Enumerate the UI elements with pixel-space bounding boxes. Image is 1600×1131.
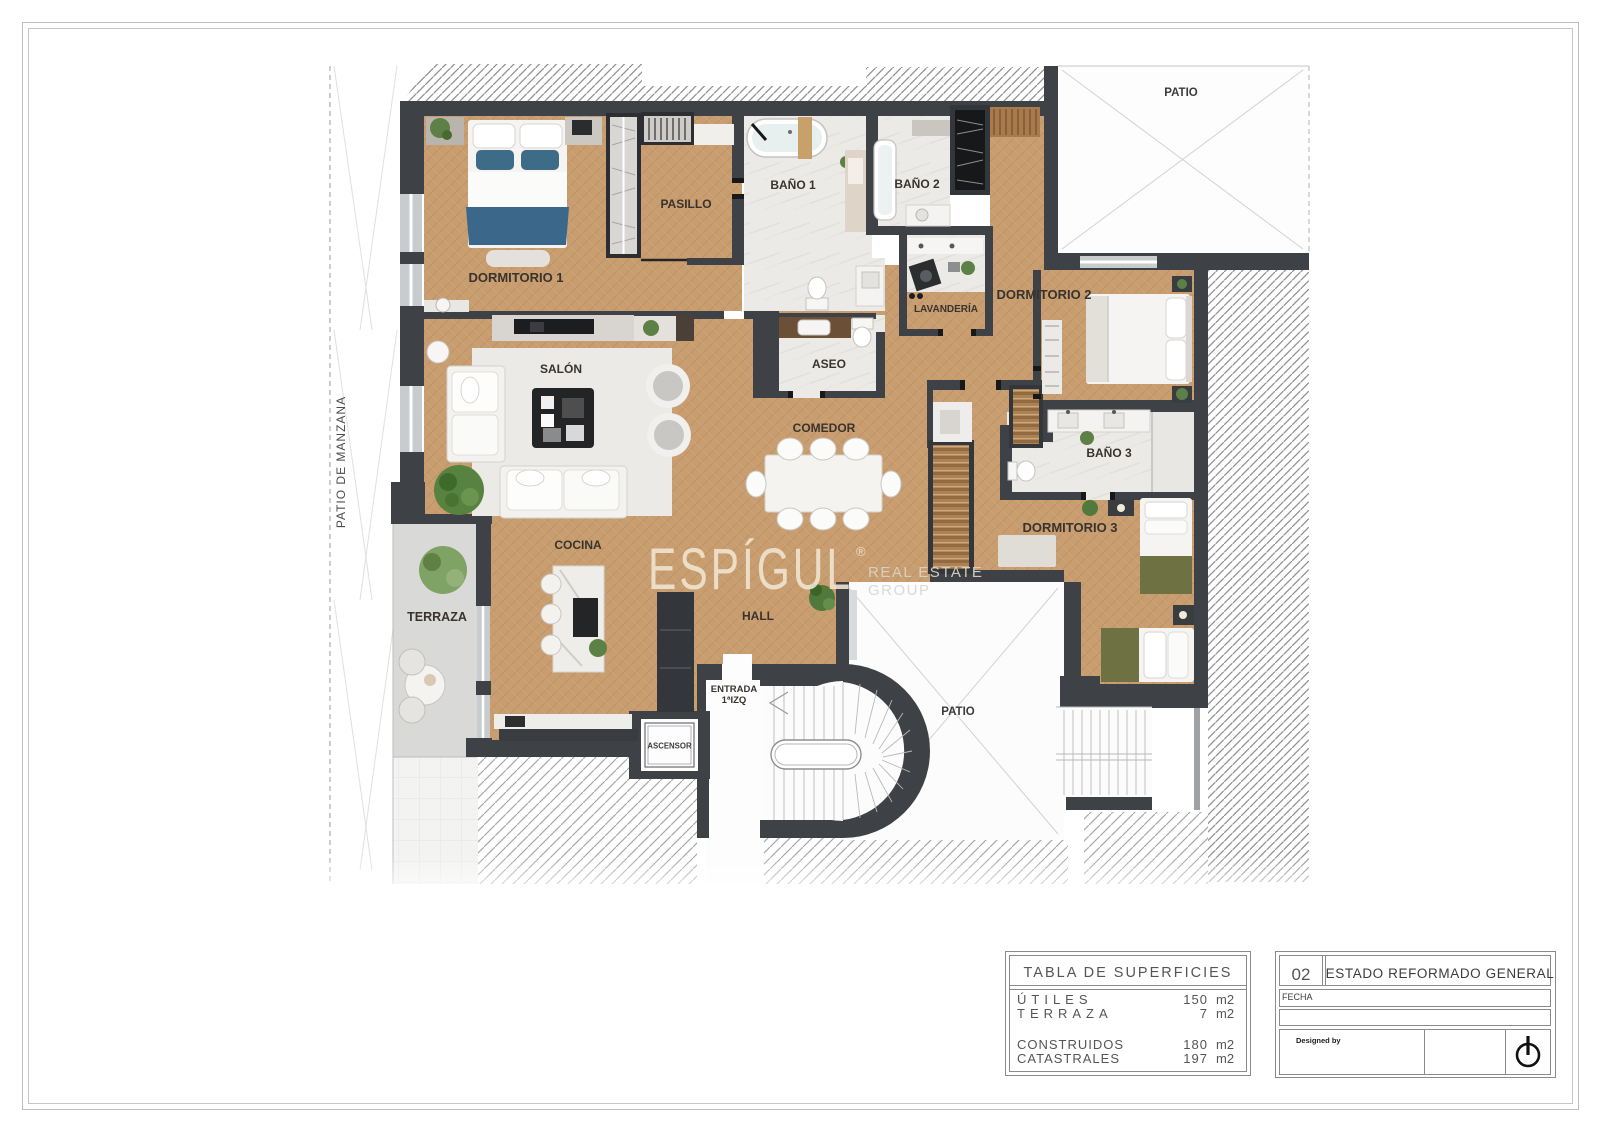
svg-text:BAÑO 1: BAÑO 1	[770, 177, 816, 192]
svg-text:BAÑO 2: BAÑO 2	[894, 176, 940, 191]
svg-text:COMEDOR: COMEDOR	[793, 421, 856, 435]
svg-text:LAVANDERÍA: LAVANDERÍA	[914, 302, 978, 315]
svg-text:02: 02	[1292, 965, 1311, 984]
svg-text:SALÓN: SALÓN	[540, 361, 582, 376]
svg-text:PATIO: PATIO	[941, 706, 974, 718]
svg-text:PATIO: PATIO	[1164, 87, 1197, 99]
svg-text:ESTADO REFORMADO GENERAL: ESTADO REFORMADO GENERAL	[1326, 966, 1555, 981]
svg-text:7: 7	[1200, 1006, 1208, 1021]
svg-text:m2: m2	[1216, 1051, 1234, 1066]
svg-text:ASCENSOR: ASCENSOR	[647, 742, 692, 751]
svg-text:197: 197	[1183, 1051, 1208, 1066]
svg-text:ESPÍGUL: ESPÍGUL	[648, 537, 853, 602]
svg-text:m2: m2	[1216, 1037, 1234, 1052]
svg-text:BAÑO 3: BAÑO 3	[1086, 445, 1132, 460]
svg-text:TERRAZA: TERRAZA	[1017, 1006, 1113, 1021]
svg-text:m2: m2	[1216, 992, 1234, 1007]
svg-text:ENTRADA: ENTRADA	[711, 684, 758, 695]
svg-text:TABLA DE SUPERFICIES: TABLA DE SUPERFICIES	[1024, 965, 1233, 981]
svg-text:COCINA: COCINA	[554, 538, 602, 552]
svg-text:m2: m2	[1216, 1006, 1234, 1021]
svg-text:REAL ESTATE: REAL ESTATE	[868, 564, 983, 581]
svg-text:180: 180	[1183, 1037, 1208, 1052]
svg-text:FECHA: FECHA	[1282, 992, 1313, 1002]
svg-text:Designed by: Designed by	[1296, 1036, 1341, 1045]
svg-text:PATIO DE MANZANA: PATIO DE MANZANA	[334, 396, 348, 528]
svg-text:DORMITORIO 1: DORMITORIO 1	[468, 270, 563, 285]
svg-text:150: 150	[1183, 992, 1208, 1007]
svg-text:HALL: HALL	[742, 609, 774, 623]
svg-text:GROUP: GROUP	[868, 582, 931, 599]
svg-text:DORMITORIO 3: DORMITORIO 3	[1022, 520, 1117, 535]
svg-text:ASEO: ASEO	[812, 357, 846, 371]
svg-text:CATASTRALES: CATASTRALES	[1017, 1051, 1120, 1066]
svg-text:TERRAZA: TERRAZA	[407, 610, 467, 624]
svg-text:CONSTRUIDOS: CONSTRUIDOS	[1017, 1037, 1124, 1052]
svg-text:®: ®	[856, 544, 866, 559]
svg-text:PASILLO: PASILLO	[660, 197, 711, 211]
svg-text:DORMITORIO 2: DORMITORIO 2	[996, 287, 1091, 302]
svg-text:ÚTILES: ÚTILES	[1017, 992, 1093, 1007]
svg-text:1ªIZQ: 1ªIZQ	[722, 695, 747, 706]
